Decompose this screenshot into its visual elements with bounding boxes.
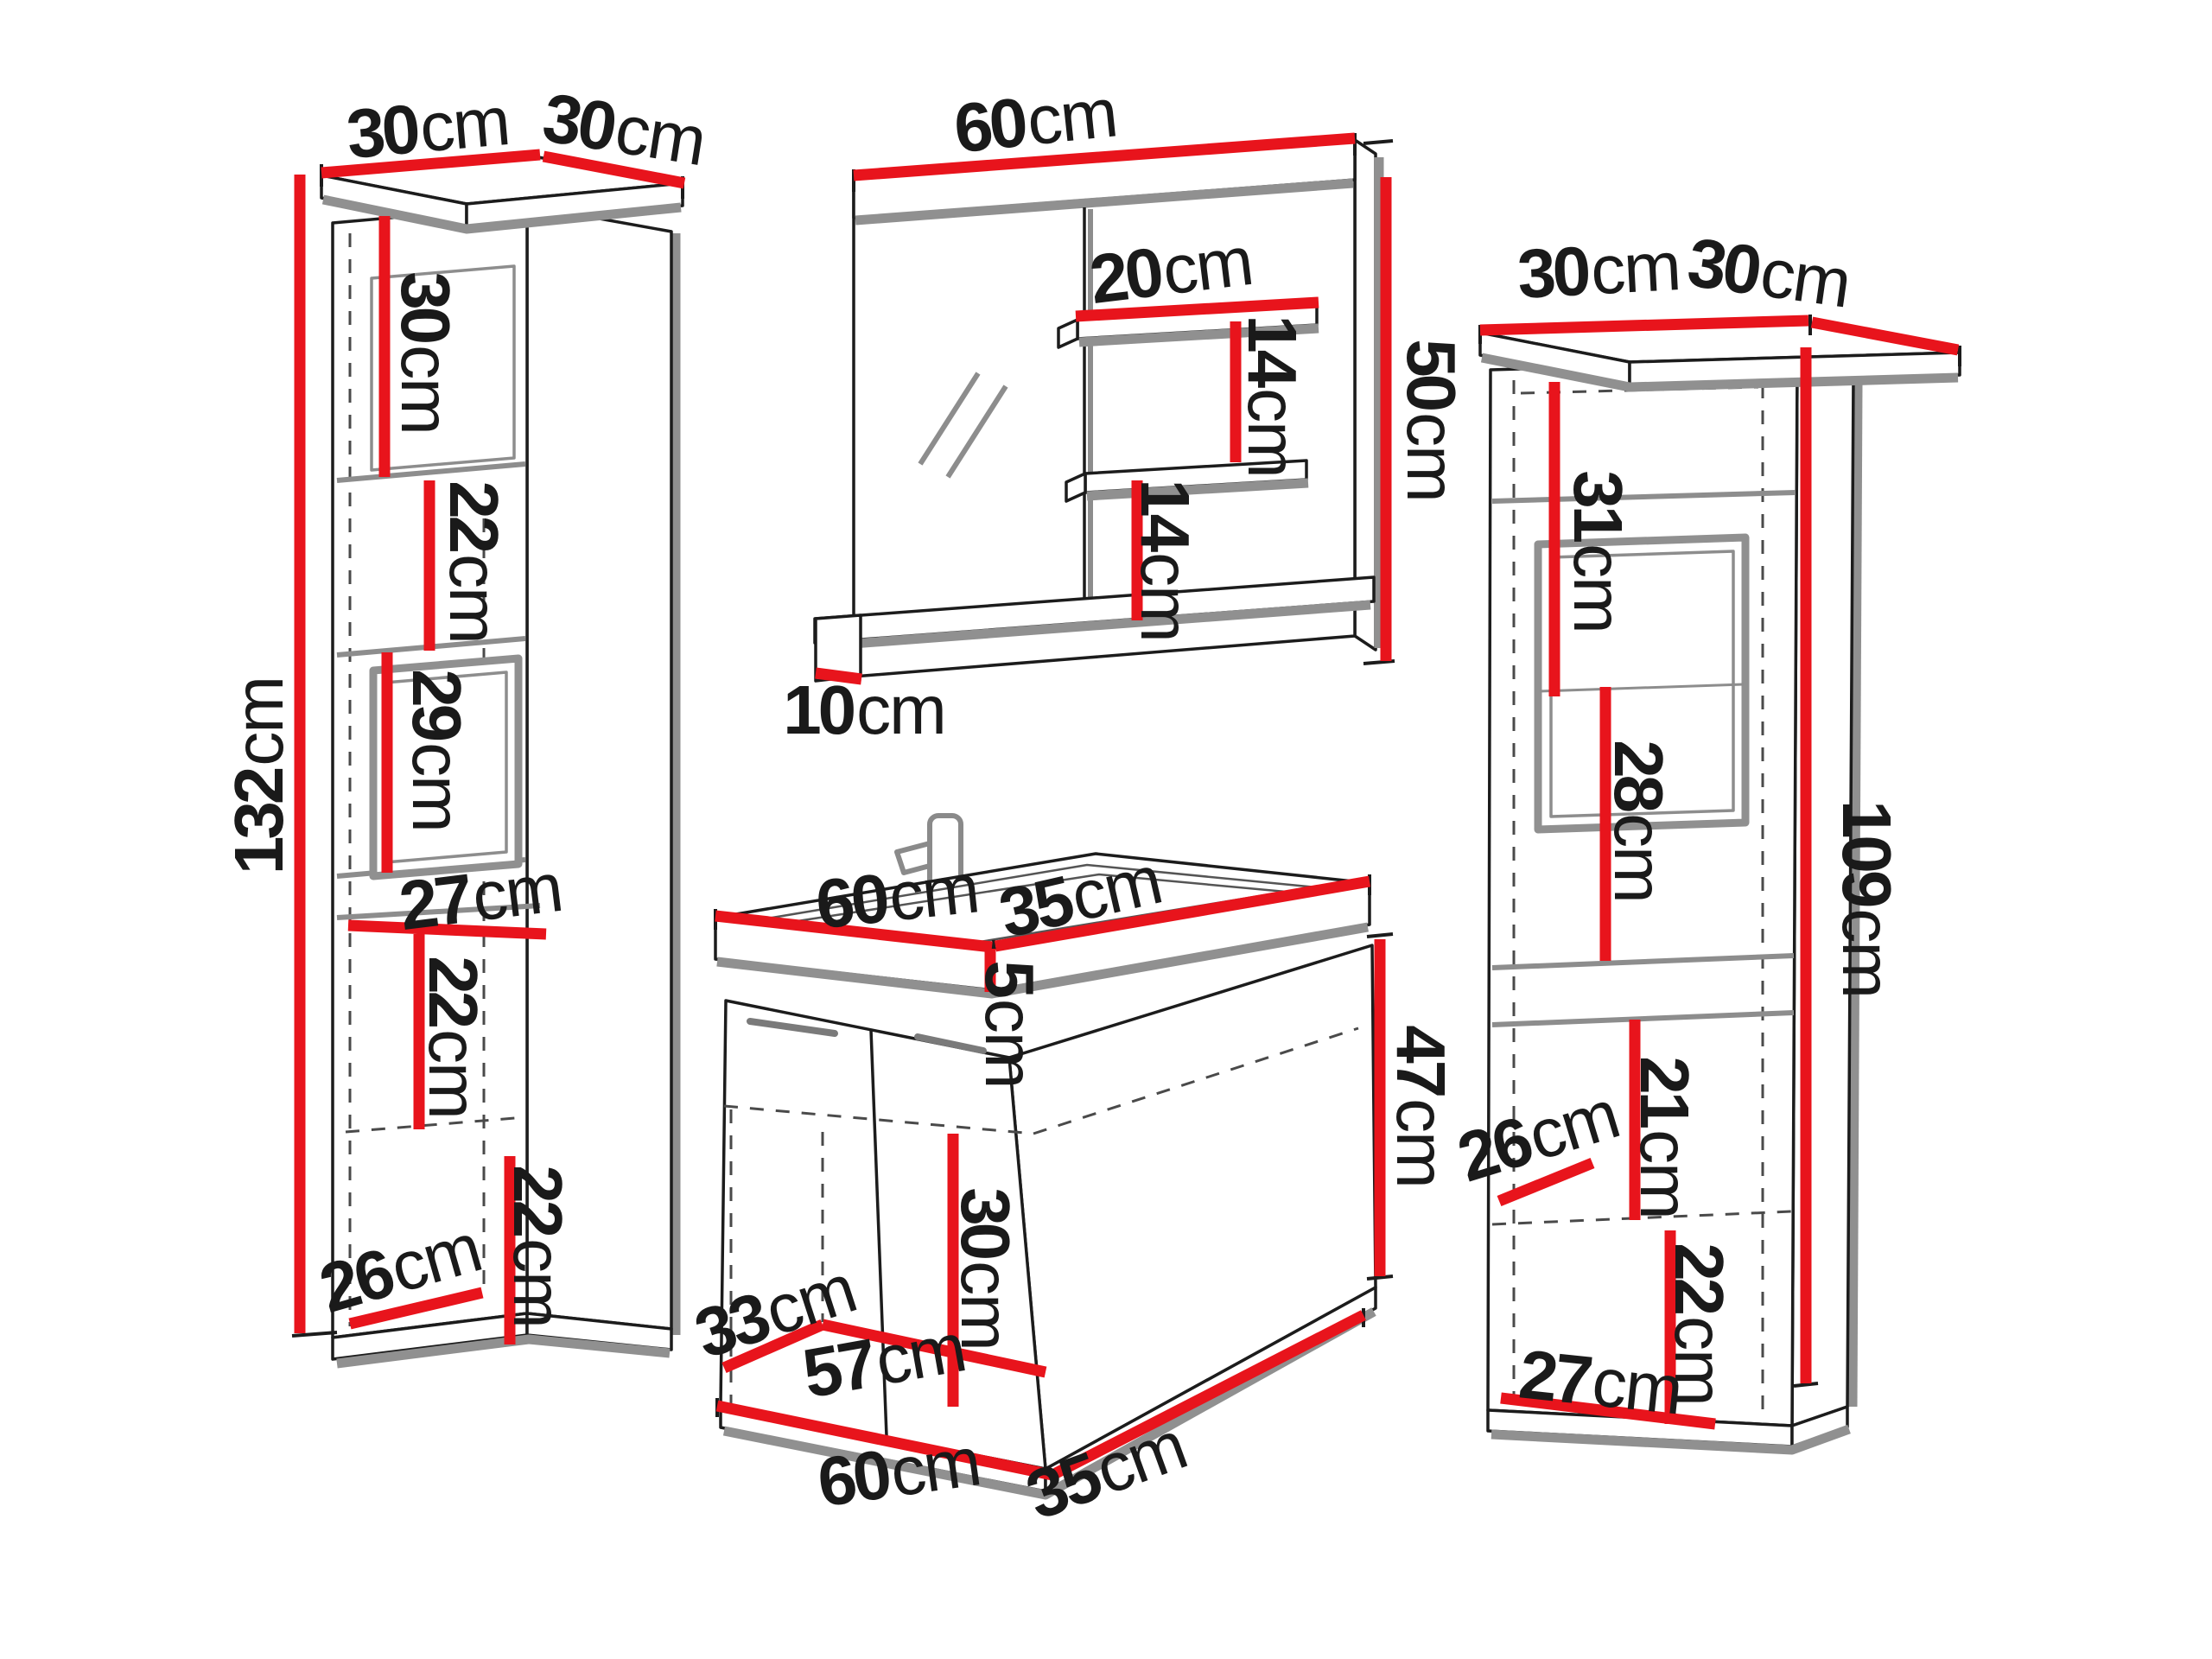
dim-value: 22 [499, 1165, 576, 1235]
dim-unit: cm [435, 554, 512, 643]
dim-mirror-width: 60cm [951, 78, 1120, 163]
dim-left-cabinet-width: 30cm [344, 86, 512, 169]
dim-vanity-basin-height: 5cm [975, 960, 1044, 1087]
dim-unit: cm [468, 849, 566, 936]
dim-unit: cm [1600, 813, 1677, 902]
dim-value: 60 [813, 1435, 893, 1521]
dim-mirror-shelf-gap-1: 14cm [1237, 315, 1306, 477]
dim-left-cabinet-section-4: 27cm [396, 853, 565, 941]
dim-value: 30 [1516, 232, 1590, 313]
dim-unit: cm [1382, 1098, 1459, 1187]
dim-left-cabinet-section-5: 22cm [418, 956, 487, 1118]
dim-value: 20 [1085, 233, 1164, 318]
dim-value: 47 [1382, 1025, 1459, 1095]
dim-value: 27 [1516, 1335, 1593, 1419]
dim-right-cabinet-section-3: 21cm [1630, 1056, 1699, 1218]
dim-value: 30 [537, 79, 619, 166]
dim-unit: cm [499, 1238, 576, 1327]
dim-vanity-cabinet-height: 47cm [1386, 1025, 1455, 1187]
dim-right-cabinet-height: 109cm [1832, 800, 1901, 997]
dim-unit: cm [1756, 233, 1854, 321]
dim-unit: cm [1589, 227, 1681, 308]
dim-unit: cm [398, 742, 475, 831]
dim-left-cabinet-height: 132cm [225, 677, 294, 874]
dim-unit: cm [869, 1308, 970, 1399]
dim-mirror-shelf-gap-2: 14cm [1130, 479, 1199, 641]
dim-value: 21 [1626, 1056, 1703, 1126]
left-tall-cabinet [292, 155, 684, 1363]
dim-value: 22 [415, 956, 492, 1026]
dim-mirror-shelf-width: 20cm [1086, 226, 1255, 315]
dim-value: 10 [783, 671, 853, 748]
dim-unit: cm [1159, 222, 1256, 309]
dim-right-cabinet-section-2: 28cm [1604, 740, 1673, 902]
dim-left-cabinet-section-6: 22cm [503, 1165, 572, 1327]
dim-unit: cm [1589, 1343, 1685, 1428]
dim-unit: cm [416, 82, 512, 167]
dim-left-cabinet-section-3: 29cm [402, 669, 471, 831]
furniture-dimension-diagram: 30cm 30cm 132cm 30cm 22cm 29cm 27cm 22cm… [0, 0, 2212, 1659]
dim-left-cabinet-section-1: 30cm [391, 271, 460, 434]
dim-unit: cm [1393, 412, 1470, 501]
dim-value: 22 [435, 480, 512, 550]
dim-unit: cm [856, 671, 945, 748]
dim-vanity-inner-height: 30cm [950, 1187, 1020, 1350]
dim-right-cabinet-section-6: 27cm [1516, 1339, 1685, 1425]
dim-unit: cm [220, 677, 297, 766]
dim-left-cabinet-section-2: 22cm [439, 480, 508, 643]
dim-unit: cm [886, 849, 982, 935]
dim-unit: cm [610, 90, 709, 180]
dim-unit: cm [415, 1029, 492, 1118]
dim-unit: cm [1234, 388, 1311, 477]
dim-value: 30 [1683, 223, 1764, 308]
dim-value: 30 [947, 1187, 1024, 1257]
dim-value: 14 [1127, 479, 1204, 549]
dim-unit: cm [1828, 908, 1905, 997]
dim-value: 27 [395, 860, 474, 944]
dim-value: 60 [812, 860, 890, 944]
dim-unit: cm [1024, 73, 1120, 159]
dim-value: 50 [1393, 339, 1470, 409]
dim-value: 5 [971, 960, 1048, 995]
dim-unit: cm [1626, 1129, 1703, 1218]
dim-right-cabinet-section-1: 31cm [1563, 470, 1632, 632]
dim-value: 14 [1234, 315, 1311, 385]
dim-right-cabinet-width: 30cm [1516, 232, 1681, 309]
dim-vanity-top-width: 60cm [813, 854, 982, 939]
dim-value: 109 [1828, 800, 1905, 905]
dim-unit: cm [971, 999, 1048, 1088]
dim-value: 29 [398, 669, 475, 739]
dim-unit: cm [886, 1422, 984, 1510]
dim-unit: cm [1560, 543, 1637, 632]
dim-value: 30 [344, 90, 420, 173]
dim-unit: cm [387, 345, 464, 434]
dim-value: 28 [1600, 740, 1677, 810]
dim-value: 60 [950, 84, 1028, 168]
dim-value: 132 [220, 770, 297, 874]
dim-value: 22 [1661, 1243, 1738, 1313]
dim-mirror-height: 50cm [1396, 339, 1465, 501]
dim-value: 30 [387, 271, 464, 341]
dim-value: 57 [798, 1325, 880, 1413]
dim-mirror-bottom-shelf-depth: 10cm [783, 676, 945, 745]
dim-unit: cm [1127, 552, 1204, 641]
dim-value: 31 [1560, 470, 1637, 540]
